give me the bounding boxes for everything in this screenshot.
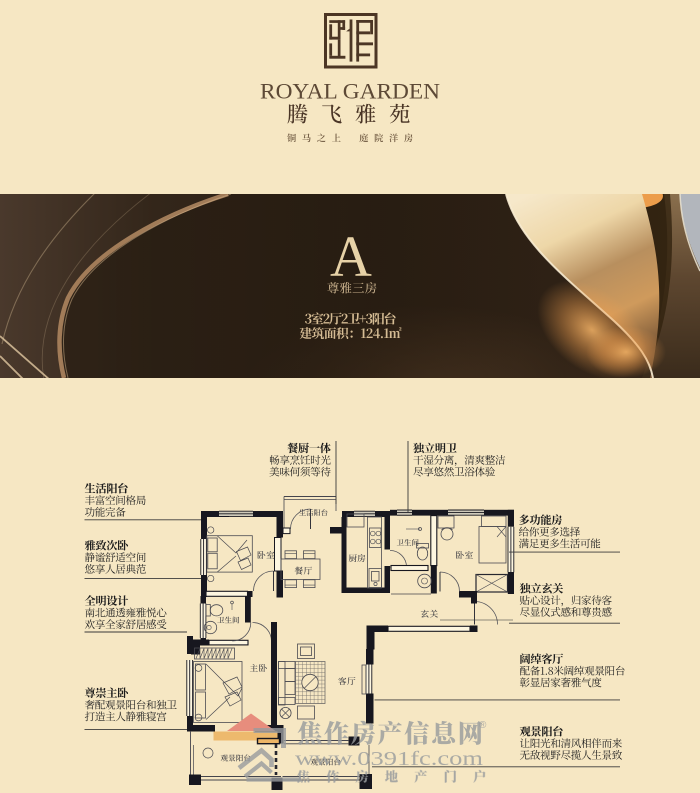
svg-text:www.0391fc.com: www.0391fc.com: [295, 748, 484, 770]
svg-text:A: A: [330, 224, 372, 289]
svg-text:ROYAL GARDEN: ROYAL GARDEN: [260, 79, 440, 104]
svg-text:®: ®: [479, 720, 487, 731]
